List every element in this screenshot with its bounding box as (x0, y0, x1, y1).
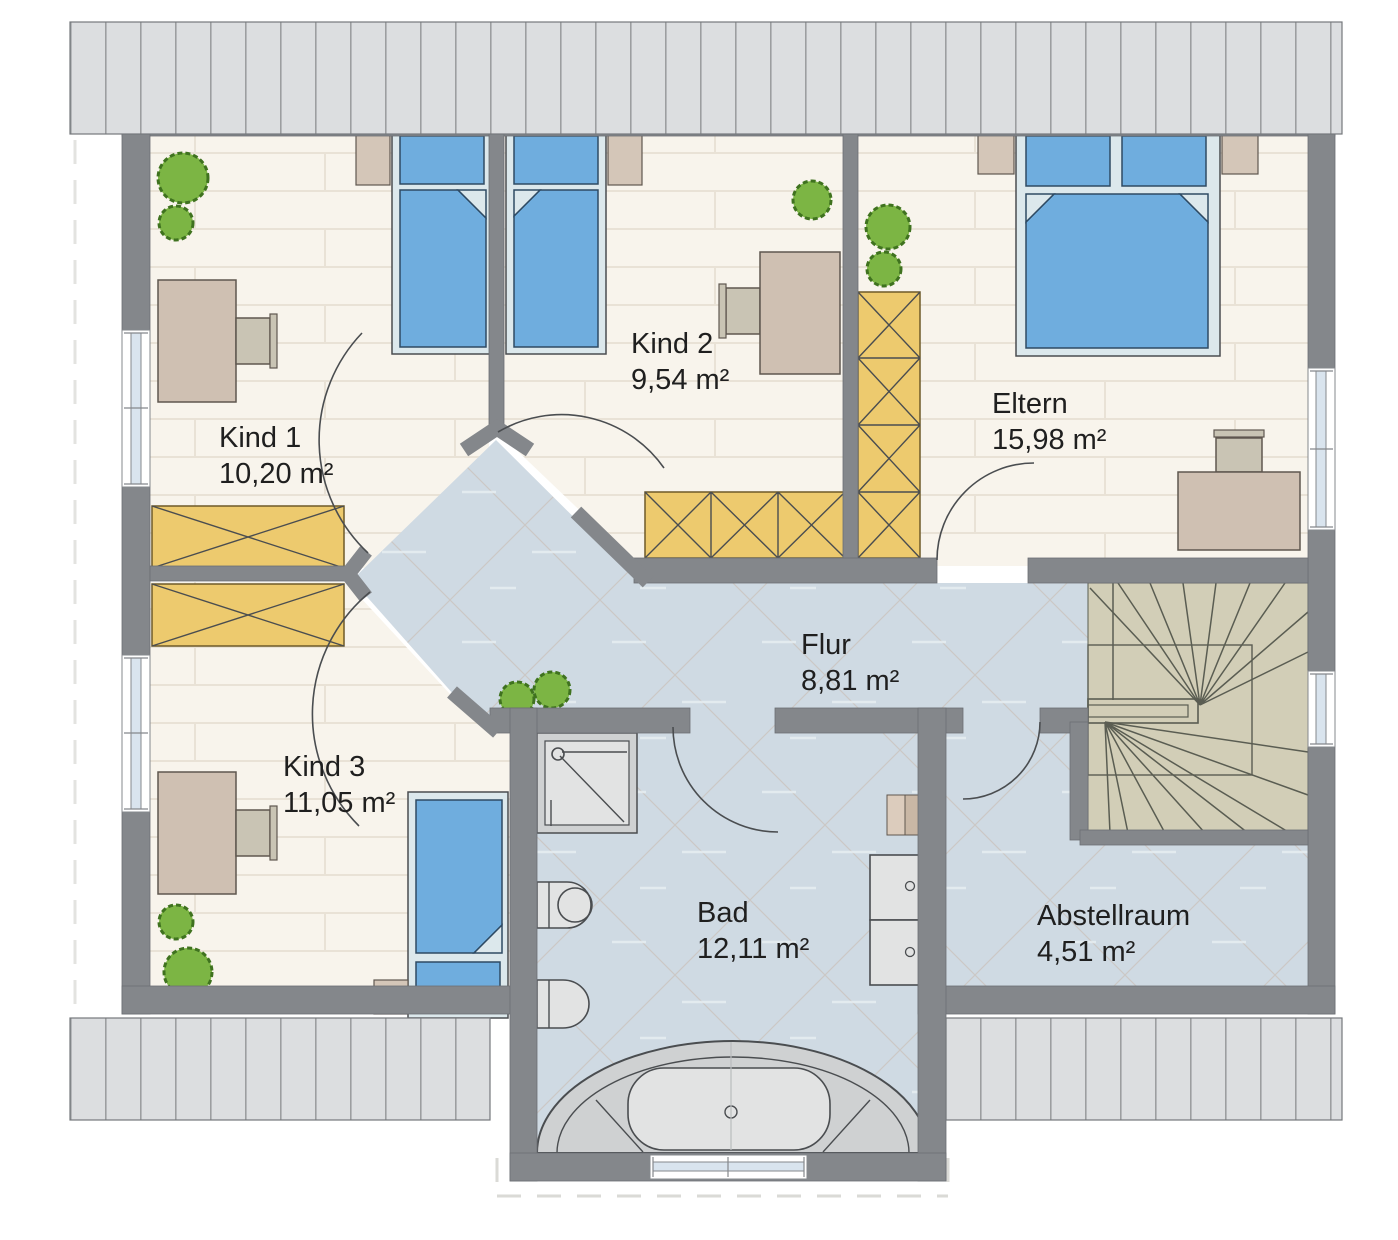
room-name: Kind 3 (283, 749, 395, 785)
nightstand (1222, 130, 1258, 174)
room-label-kind3: Kind 3 11,05 m² (283, 749, 395, 821)
plant (159, 905, 193, 939)
room-area: 4,51 m² (1037, 934, 1190, 970)
floorplan: Kind 1 10,20 m² Kind 2 9,54 m² Eltern 15… (0, 0, 1398, 1240)
plant (793, 181, 831, 219)
chair (236, 810, 270, 856)
room-area: 9,54 m² (631, 362, 729, 398)
nightstand (608, 133, 642, 185)
room-name: Kind 1 (219, 420, 333, 456)
chair (1216, 438, 1262, 472)
room-label-abstellraum: Abstellraum 4,51 m² (1037, 898, 1190, 970)
window (122, 330, 150, 487)
plant (866, 205, 910, 249)
bed (408, 792, 508, 1018)
blanket (400, 190, 486, 347)
roof-strip-bottom-left (70, 1018, 490, 1120)
room-label-flur: Flur 8,81 m² (801, 627, 899, 699)
room-name: Eltern (992, 386, 1106, 422)
room-label-eltern: Eltern 15,98 m² (992, 386, 1106, 458)
blanket (514, 190, 598, 347)
nightstand (356, 133, 390, 185)
room-area: 8,81 m² (801, 663, 899, 699)
window (1308, 671, 1335, 747)
room-name: Bad (697, 895, 809, 931)
chair (236, 318, 270, 364)
room-area: 11,05 m² (283, 785, 395, 821)
roof-strip-top (70, 22, 1342, 134)
wall-basin (887, 795, 921, 835)
blanket (1026, 194, 1208, 348)
room-label-kind1: Kind 1 10,20 m² (219, 420, 333, 492)
room-name: Flur (801, 627, 899, 663)
bed (392, 128, 492, 354)
room-name: Kind 2 (631, 326, 729, 362)
room-label-bad: Bad 12,11 m² (697, 895, 809, 967)
room-label-kind2: Kind 2 9,54 m² (631, 326, 729, 398)
room-area: 10,20 m² (219, 456, 333, 492)
wardrobe (858, 292, 920, 558)
staircase (1088, 583, 1308, 833)
nightstand (978, 130, 1014, 174)
window (1308, 368, 1335, 530)
pillow (1122, 136, 1206, 186)
room-area: 15,98 m² (992, 422, 1106, 458)
room-name: Abstellraum (1037, 898, 1190, 934)
toilet (537, 882, 592, 928)
plant (867, 252, 901, 286)
window (122, 655, 150, 812)
pillow (400, 136, 484, 184)
plant (534, 672, 570, 708)
wardrobe (645, 492, 845, 558)
chair (726, 288, 760, 334)
window (650, 1155, 807, 1179)
double-bed (1016, 128, 1220, 356)
roof-strip-bottom-right (946, 1018, 1342, 1120)
floorplan-svg (0, 0, 1398, 1240)
pillow (514, 136, 598, 184)
bed (506, 128, 606, 354)
room-area: 12,11 m² (697, 931, 809, 967)
blanket (416, 800, 502, 953)
bath-cabinet (870, 855, 922, 985)
bidet (537, 980, 589, 1028)
pillow (1026, 136, 1110, 186)
shower (537, 733, 637, 833)
